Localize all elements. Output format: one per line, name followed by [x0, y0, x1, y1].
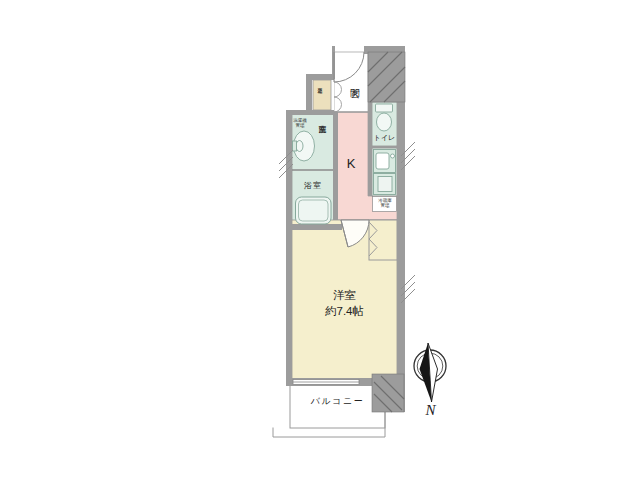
- balcony-window: [293, 380, 359, 385]
- kitchen-label: K: [334, 156, 368, 171]
- washer-place-label: 洗濯機 置場: [290, 118, 310, 129]
- washroom-top-wall: [286, 110, 334, 115]
- main-room-label: 洋室 約7.4帖: [292, 288, 397, 319]
- compass-north-label: N: [414, 402, 447, 419]
- main-room-name: 洋室: [292, 288, 397, 304]
- fridge-place-line2: 置場: [373, 203, 397, 208]
- floorplan-page: 玄関 下足箱 トイレ 洗面室 洗濯機 置場 浴室 K 冷蔵庫 置場 洋室 約7.…: [0, 0, 640, 480]
- bathroom-label: 浴室: [296, 180, 330, 191]
- bathroom-bottom-wall: [286, 224, 342, 230]
- washer-place-line2: 置場: [290, 123, 310, 128]
- shoe-box: [313, 80, 331, 110]
- niche-left-wall: [306, 74, 312, 115]
- compass-icon: [414, 343, 446, 402]
- balcony-label: バルコニー: [290, 395, 385, 408]
- bathtub-icon: [296, 197, 332, 224]
- fridge-place-label: 冷蔵庫 置場: [373, 198, 397, 209]
- entrance-label: 玄関: [348, 81, 361, 83]
- hatched-wall-top-right: [368, 52, 405, 102]
- floorplan-drawing: [0, 0, 640, 480]
- entrance-kitchen-line: [334, 112, 368, 113]
- toilet-counter-divider: [371, 146, 397, 148]
- main-room-size: 約7.4帖: [292, 304, 397, 320]
- toilet-label: トイレ: [371, 133, 398, 143]
- toilet-fixture-icon: [376, 104, 393, 131]
